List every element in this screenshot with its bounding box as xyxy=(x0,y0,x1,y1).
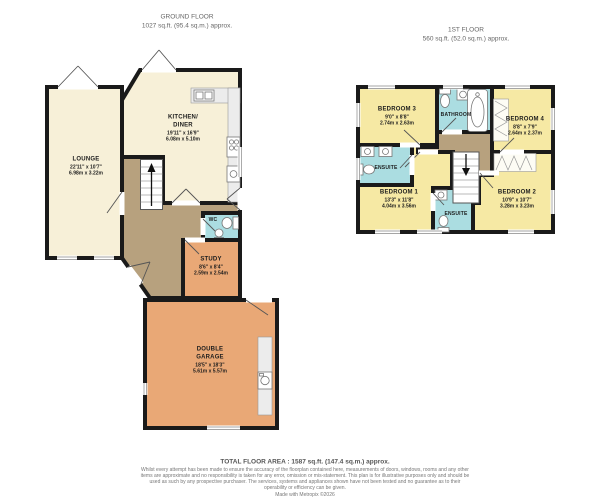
ground-floor-title: GROUND FLOOR 1027 sq.ft. (95.4 sq.m.) ap… xyxy=(142,13,232,32)
ground-floor-plan xyxy=(47,50,277,431)
stairs-up-icon xyxy=(140,160,163,210)
total-floor-area: TOTAL FLOOR AREA : 1587 sq.ft. (147.4 sq… xyxy=(220,459,389,466)
floorplan-graphics xyxy=(0,0,600,502)
ensuite1-label: ENSUITE xyxy=(374,165,397,172)
garage-label: DOUBLE GARAGE 18'5" x 18'3" 5.61m x 5.57… xyxy=(193,347,227,376)
bathroom-label: BATHROOM xyxy=(441,112,472,119)
disclaimer-text: Whilst every attempt has been made to en… xyxy=(140,468,470,492)
kitchen-sink-icon xyxy=(194,90,214,101)
bathtub-icon xyxy=(468,90,488,132)
ground-floor-name: GROUND FLOOR xyxy=(142,13,232,22)
sink-icon xyxy=(435,190,447,200)
ensuite2-label: ENSUITE xyxy=(444,211,467,218)
toilet-icon xyxy=(222,217,239,229)
first-floor-area: 560 sq.ft. (52.0 sq.m.) approx. xyxy=(423,35,510,44)
toilet-icon xyxy=(359,164,375,175)
credit-text: Made with Metropix ©2026 xyxy=(275,492,335,498)
first-floor-title: 1ST FLOOR 560 sq.ft. (52.0 sq.m.) approx… xyxy=(423,26,510,45)
stairs-down-icon xyxy=(453,152,479,203)
wardrobe-bedroom2 xyxy=(494,154,536,172)
kitchen-label: KITCHEN/ DINER 19'11" x 16'9" 6.08m x 5.… xyxy=(166,115,200,144)
study-label: STUDY 8'6" x 8'4" 2.59m x 2.54m xyxy=(194,257,228,278)
floorplan-page: GROUND FLOOR 1027 sq.ft. (95.4 sq.m.) ap… xyxy=(0,0,600,502)
first-floor-name: 1ST FLOOR xyxy=(423,26,510,35)
bedroom1-label: BEDROOM 1 13'3" x 11'8" 4.04m x 3.56m xyxy=(380,190,418,211)
toilet-icon xyxy=(440,89,451,108)
wc-label: WC xyxy=(209,217,218,224)
lounge-label: LOUNGE 22'11" x 10'7" 6.98m x 3.22m xyxy=(69,157,103,178)
bedroom3-label: BEDROOM 3 9'0" x 8'8" 2.74m x 2.63m xyxy=(378,107,416,128)
bedroom4-label: BEDROOM 4 8'8" x 7'9" 2.64m x 2.37m xyxy=(506,117,544,138)
washing-machine-icon xyxy=(258,372,272,389)
ground-floor-area: 1027 sq.ft. (95.4 sq.m.) approx. xyxy=(142,22,232,31)
bedroom2-label: BEDROOM 2 10'9" x 10'7" 3.28m x 3.23m xyxy=(498,190,536,211)
